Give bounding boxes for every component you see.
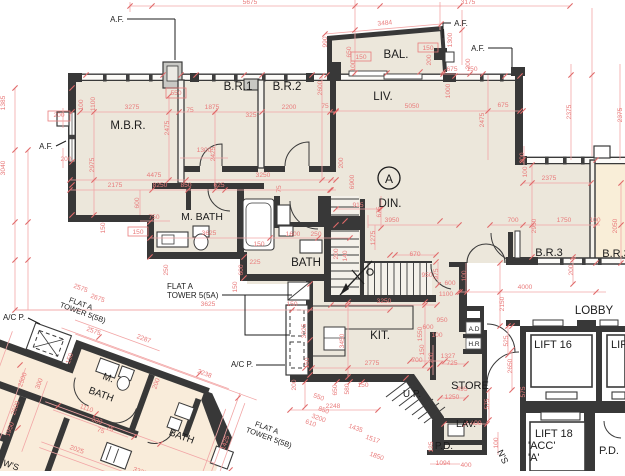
svg-text:1250: 1250	[445, 394, 460, 401]
svg-text:100: 100	[522, 166, 529, 177]
svg-text:950: 950	[421, 272, 432, 279]
svg-text:225: 225	[249, 259, 260, 266]
svg-text:1385: 1385	[0, 95, 7, 110]
svg-text:550: 550	[170, 90, 181, 97]
svg-text:A.F.: A.F.	[471, 44, 485, 53]
svg-text:150: 150	[422, 45, 433, 52]
svg-text:5050: 5050	[405, 103, 420, 110]
svg-text:1327: 1327	[441, 353, 456, 360]
svg-text:140: 140	[342, 250, 349, 261]
svg-text:2050: 2050	[612, 218, 619, 233]
svg-text:250: 250	[163, 264, 170, 275]
svg-text:DIN.: DIN.	[379, 198, 402, 210]
svg-text:750: 750	[148, 214, 159, 221]
svg-text:670: 670	[409, 251, 420, 258]
svg-text:4000: 4000	[518, 284, 533, 291]
svg-text:TOWER 5(5A): TOWER 5(5A)	[167, 291, 219, 300]
svg-text:1100: 1100	[439, 291, 454, 298]
svg-text:75: 75	[276, 185, 283, 193]
svg-text:'ACC': 'ACC'	[528, 440, 555, 452]
svg-text:5675: 5675	[243, 0, 258, 6]
svg-text:1750: 1750	[557, 217, 572, 224]
svg-text:LIFT 16: LIFT 16	[534, 339, 572, 351]
svg-text:100: 100	[461, 270, 468, 281]
svg-text:2175: 2175	[108, 182, 123, 189]
svg-text:1600: 1600	[286, 231, 301, 238]
svg-text:1275: 1275	[370, 230, 377, 245]
svg-text:600: 600	[444, 280, 455, 287]
svg-text:A: A	[385, 172, 393, 186]
svg-text:150: 150	[355, 54, 366, 61]
svg-text:75: 75	[321, 103, 329, 110]
svg-text:3484: 3484	[377, 19, 393, 27]
svg-text:2600: 2600	[317, 80, 324, 95]
svg-text:LIV.: LIV.	[373, 91, 392, 103]
svg-text:6900: 6900	[349, 174, 356, 189]
svg-text:150: 150	[253, 241, 264, 248]
svg-text:2475: 2475	[164, 120, 171, 135]
svg-text:A.F.: A.F.	[454, 19, 468, 28]
svg-text:4475: 4475	[147, 172, 162, 179]
svg-text:B.R.1: B.R.1	[224, 81, 253, 93]
svg-text:STORE: STORE	[451, 380, 489, 392]
svg-text:2150: 2150	[499, 296, 506, 311]
svg-text:A.F.: A.F.	[39, 142, 53, 151]
svg-text:1000: 1000	[445, 83, 452, 98]
svg-text:675: 675	[497, 102, 508, 109]
svg-text:1100: 1100	[90, 97, 97, 112]
svg-text:400: 400	[460, 462, 471, 469]
svg-text:B.R.3: B.R.3	[602, 248, 625, 260]
svg-text:580: 580	[344, 383, 351, 394]
svg-text:LOBBY: LOBBY	[575, 305, 614, 317]
svg-text:975: 975	[433, 268, 440, 279]
svg-text:150: 150	[357, 382, 368, 389]
svg-text:LIFT 18: LIFT 18	[535, 428, 573, 440]
svg-text:150: 150	[286, 301, 297, 308]
svg-text:BATH: BATH	[291, 257, 321, 269]
svg-text:2950: 2950	[531, 218, 538, 233]
svg-text:M. BATH: M. BATH	[181, 211, 223, 223]
svg-text:B.R.3: B.R.3	[535, 247, 563, 259]
svg-text:200: 200	[519, 152, 526, 163]
svg-text:P.D.: P.D.	[599, 445, 619, 457]
svg-text:2975: 2975	[89, 157, 96, 172]
svg-text:B.R.2: B.R.2	[273, 81, 302, 93]
svg-text:150: 150	[419, 344, 426, 355]
svg-text:FLAT A: FLAT A	[167, 282, 194, 291]
svg-text:100: 100	[350, 60, 357, 71]
svg-text:1094: 1094	[436, 460, 451, 467]
svg-text:P.D.: P.D.	[435, 441, 453, 452]
svg-text:200: 200	[426, 54, 433, 65]
svg-text:3250: 3250	[377, 298, 392, 305]
svg-text:100: 100	[589, 217, 600, 224]
svg-text:BAL.: BAL.	[384, 49, 409, 61]
svg-text:150: 150	[100, 222, 107, 233]
svg-text:A.F.: A.F.	[110, 15, 124, 24]
svg-text:3275: 3275	[125, 104, 140, 111]
svg-text:575: 575	[484, 398, 491, 409]
svg-text:325: 325	[245, 112, 256, 119]
svg-text:2375: 2375	[566, 104, 573, 119]
svg-text:2375: 2375	[617, 107, 624, 122]
svg-text:U.P.: U.P.	[403, 389, 421, 400]
svg-text:M.B.R.: M.B.R.	[110, 120, 145, 132]
svg-text:3625: 3625	[201, 301, 216, 308]
svg-text:575: 575	[520, 386, 527, 397]
svg-text:3950: 3950	[385, 217, 400, 224]
svg-text:2375: 2375	[542, 175, 557, 182]
svg-text:100: 100	[78, 99, 85, 110]
svg-text:3625: 3625	[202, 230, 217, 237]
svg-text:A/C P.: A/C P.	[231, 360, 253, 369]
svg-text:1875: 1875	[205, 104, 220, 111]
svg-text:200: 200	[333, 248, 340, 259]
svg-text:150: 150	[304, 357, 311, 368]
svg-text:600: 600	[134, 197, 141, 208]
svg-text:200: 200	[291, 379, 298, 390]
svg-text:3225: 3225	[301, 323, 308, 338]
svg-text:200: 200	[60, 156, 71, 163]
svg-text:3450: 3450	[339, 333, 346, 348]
svg-text:850: 850	[180, 182, 191, 189]
svg-text:725: 725	[446, 360, 457, 367]
svg-text:675: 675	[446, 66, 457, 73]
svg-text:250: 250	[310, 231, 321, 238]
svg-text:75: 75	[186, 107, 194, 114]
svg-text:600: 600	[238, 264, 245, 275]
svg-text:650: 650	[346, 46, 353, 57]
svg-text:200: 200	[428, 352, 435, 363]
svg-text:150: 150	[132, 229, 143, 236]
svg-text:3250: 3250	[256, 172, 271, 179]
svg-text:600: 600	[422, 324, 433, 331]
svg-text:525: 525	[503, 335, 510, 346]
svg-text:150: 150	[232, 281, 239, 292]
svg-text:LAV.: LAV.	[456, 419, 476, 430]
svg-text:1300: 1300	[447, 32, 454, 47]
svg-text:990: 990	[322, 36, 329, 47]
svg-text:KIT.: KIT.	[370, 330, 390, 342]
svg-text:A.D: A.D	[469, 326, 480, 333]
svg-text:625: 625	[213, 182, 224, 189]
svg-text:650: 650	[332, 384, 339, 395]
svg-text:H.R: H.R	[468, 341, 480, 348]
svg-text:200: 200	[568, 264, 575, 275]
svg-text:8250: 8250	[153, 182, 168, 189]
svg-text:3175: 3175	[461, 0, 476, 6]
svg-text:2200: 2200	[282, 104, 297, 111]
svg-text:915: 915	[352, 202, 363, 209]
svg-text:3040: 3040	[0, 160, 7, 175]
svg-text:'A': 'A'	[528, 452, 540, 464]
svg-text:2775: 2775	[365, 360, 380, 367]
svg-text:700: 700	[411, 357, 422, 364]
svg-text:LIF: LIF	[611, 339, 625, 351]
svg-text:100: 100	[431, 332, 442, 339]
svg-text:950: 950	[436, 317, 447, 324]
svg-text:2475: 2475	[479, 112, 486, 127]
svg-text:A/C P.: A/C P.	[3, 313, 25, 322]
svg-text:200: 200	[465, 58, 472, 69]
svg-text:700: 700	[507, 217, 518, 224]
svg-text:100: 100	[493, 437, 500, 448]
svg-text:2650: 2650	[507, 358, 514, 373]
svg-text:200: 200	[338, 157, 345, 168]
svg-text:1300: 1300	[197, 147, 212, 154]
